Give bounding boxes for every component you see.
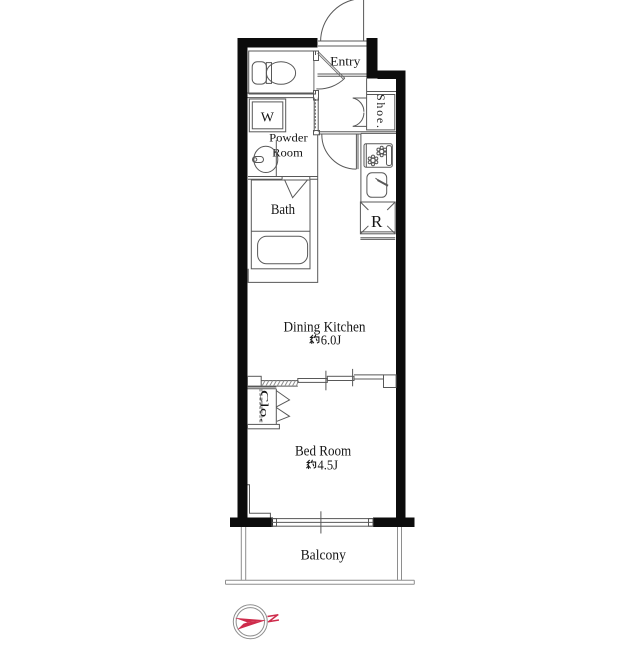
svg-text:W: W [261,111,275,126]
svg-text:Clo.: Clo. [257,390,271,422]
svg-text:Shoe.: Shoe. [374,94,388,128]
svg-text:Bath: Bath [271,202,296,218]
svg-text:4.5J: 4.5J [318,457,339,472]
svg-text:R: R [371,212,383,231]
svg-text:6.0J: 6.0J [321,332,342,347]
svg-text:Entry: Entry [330,54,361,69]
svg-text:Balcony: Balcony [301,547,347,563]
svg-text:Powder: Powder [269,133,308,145]
